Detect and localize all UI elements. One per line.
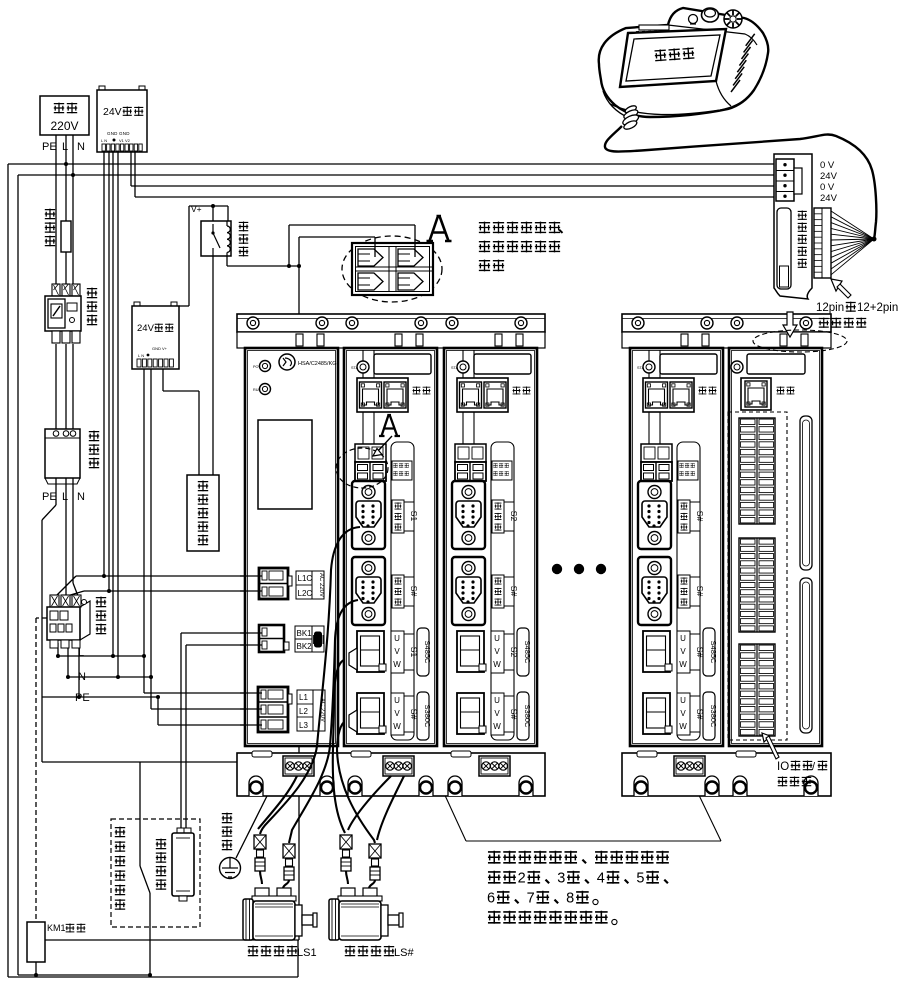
svg-text:IO: IO [777, 761, 789, 773]
svg-text:V: V [394, 709, 400, 718]
svg-text:U: U [680, 696, 686, 705]
svg-text:AC 220V: AC 220V [318, 573, 324, 597]
svg-text:PE: PE [42, 491, 57, 503]
svg-text:L: L [62, 491, 68, 503]
svg-text:V: V [494, 647, 500, 656]
svg-text:U: U [494, 634, 500, 643]
svg-text:L N: L N [138, 353, 144, 358]
svg-text:W: W [493, 660, 501, 669]
svg-text:S380C: S380C [423, 705, 432, 729]
svg-text:U: U [394, 634, 400, 643]
svg-text:4: 4 [597, 871, 605, 887]
svg-text:220V: 220V [50, 119, 78, 133]
svg-text:L2: L2 [299, 707, 308, 716]
svg-text:7: 7 [527, 891, 535, 907]
svg-text:S485C: S485C [523, 641, 532, 665]
svg-text:6: 6 [487, 891, 495, 907]
svg-text:BK1: BK1 [297, 629, 313, 638]
svg-text:W: W [679, 722, 687, 731]
svg-text:N: N [77, 491, 85, 503]
svg-text:24V: 24V [103, 106, 122, 118]
svg-text:L N: L N [101, 138, 107, 143]
svg-text:L1: L1 [299, 693, 308, 702]
svg-text:L3: L3 [299, 721, 308, 730]
svg-text:V: V [680, 709, 686, 718]
svg-text:LS#: LS# [394, 947, 414, 959]
svg-text:5: 5 [636, 871, 644, 887]
svg-text:24V: 24V [820, 171, 838, 182]
svg-text:KM1: KM1 [47, 923, 66, 933]
svg-text:S380C: S380C [709, 705, 718, 729]
svg-text:L1C: L1C [298, 574, 313, 583]
svg-text:STA: STA [451, 366, 459, 370]
svg-text:S#: S# [509, 586, 519, 597]
svg-text:0 V: 0 V [820, 160, 835, 171]
svg-text:W: W [393, 660, 401, 669]
svg-text:12pin: 12pin [816, 302, 844, 314]
svg-text:HSA/C2485/KG: HSA/C2485/KG [298, 361, 337, 367]
svg-text:S#: S# [695, 586, 705, 597]
svg-text:3: 3 [557, 871, 565, 887]
svg-text:V: V [394, 647, 400, 656]
svg-text:12+2pin: 12+2pin [857, 302, 898, 314]
svg-text:STA: STA [351, 366, 359, 370]
svg-text:STA: STA [637, 366, 645, 370]
svg-text:GND GND: GND GND [107, 131, 130, 136]
svg-text:S485C: S485C [423, 641, 432, 665]
svg-text:N: N [78, 671, 86, 683]
svg-text:V1 V2: V1 V2 [119, 138, 131, 143]
svg-text:24V: 24V [820, 193, 838, 204]
svg-text:PE: PE [75, 692, 90, 704]
svg-text:V+: V+ [191, 204, 202, 214]
svg-text:U: U [680, 634, 686, 643]
svg-text:N: N [77, 141, 85, 153]
svg-text:U: U [494, 696, 500, 705]
svg-text:S#: S# [695, 511, 705, 522]
svg-text:24V: 24V [137, 323, 155, 334]
svg-text:W: W [679, 660, 687, 669]
svg-text:PE: PE [42, 141, 57, 153]
svg-text:W: W [393, 722, 401, 731]
svg-text:L: L [78, 647, 84, 659]
svg-text:2: 2 [518, 871, 526, 887]
svg-text:S2: S2 [509, 511, 519, 522]
svg-text:S485C: S485C [709, 641, 718, 665]
svg-text:L2C: L2C [298, 589, 313, 598]
svg-text:BK2: BK2 [297, 642, 313, 651]
svg-text:S1: S1 [409, 511, 419, 522]
svg-text:LS1: LS1 [297, 947, 317, 959]
svg-text:U: U [394, 696, 400, 705]
svg-text:8: 8 [566, 891, 574, 907]
svg-text:0 V: 0 V [820, 182, 835, 193]
svg-text:V: V [494, 709, 500, 718]
svg-text:W: W [493, 722, 501, 731]
svg-text:S#: S# [409, 586, 419, 597]
svg-text:L: L [62, 141, 68, 153]
svg-text:V: V [680, 647, 686, 656]
svg-text:GND V+: GND V+ [152, 346, 168, 351]
svg-text:S380C: S380C [523, 705, 532, 729]
